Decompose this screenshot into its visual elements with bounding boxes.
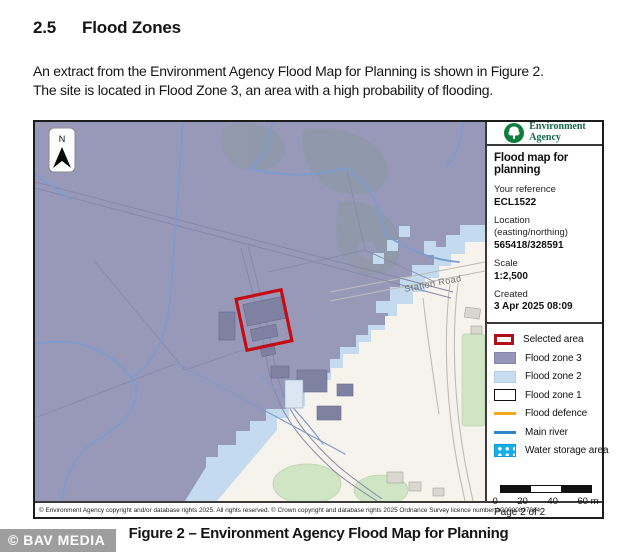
legend-item-selected-area: Selected area — [494, 333, 597, 346]
legend-item-main-river: Main river — [494, 426, 597, 439]
section-heading: 2.5 Flood Zones — [33, 18, 604, 38]
created-field: Created 3 Apr 2025 08:09 — [494, 289, 595, 314]
flood-map-area: Station Road N — [35, 122, 485, 501]
flood-defence-swatch — [494, 412, 516, 415]
section-title: Flood Zones — [82, 18, 181, 38]
intro-paragraph: An extract from the Environment Agency F… — [33, 62, 604, 100]
flood-zone-3-swatch — [494, 352, 516, 364]
selected-area-swatch — [494, 334, 514, 345]
paragraph-line: The site is located in Flood Zone 3, an … — [33, 81, 604, 100]
highlighted-building — [285, 380, 303, 408]
map-info-box: Flood map for planning Your reference EC… — [487, 146, 602, 324]
field-green — [462, 334, 485, 426]
water-storage-swatch — [494, 444, 516, 457]
flood-zone-1-swatch — [494, 389, 516, 401]
north-arrow: N — [49, 128, 75, 172]
location-field: Location (easting/northing) 565418/32859… — [494, 215, 595, 252]
legend-item-flood-defence: Flood defence — [494, 407, 597, 420]
scale-bar: 0 20 40 60 m — [494, 485, 597, 507]
scale-bar-segments — [500, 485, 592, 493]
legend-item-flood-zone-1: Flood zone 1 — [494, 389, 597, 402]
paragraph-line: An extract from the Environment Agency F… — [33, 62, 604, 81]
legend-item-flood-zone-3: Flood zone 3 — [494, 352, 597, 365]
field-green — [273, 464, 341, 501]
north-arrow-label: N — [59, 134, 66, 144]
agency-logo-text: Environment Agency — [529, 122, 586, 144]
main-river-swatch — [494, 431, 516, 434]
figure-2: Station Road N E — [33, 120, 604, 519]
legend-key-box: Selected area Flood zone 3 Flood zone 2 … — [487, 324, 602, 523]
flood-zone-2-swatch — [494, 371, 516, 383]
figure-caption: Figure 2 – Environment Agency Flood Map … — [33, 525, 604, 542]
legend-title: Flood map for planning — [494, 152, 595, 176]
reference-field: Your reference ECL1522 — [494, 184, 595, 209]
legend-item-water-storage: Water storage area — [494, 444, 597, 457]
legend-item-flood-zone-2: Flood zone 2 — [494, 370, 597, 383]
flood-map: Station Road N — [35, 122, 485, 501]
legend-panel: Environment Agency Flood map for plannin… — [485, 122, 602, 501]
agency-logo-box: Environment Agency — [487, 122, 602, 146]
document-page: 2.5 Flood Zones An extract from the Envi… — [0, 0, 634, 542]
section-number: 2.5 — [33, 18, 56, 38]
scale-bar-ticks: 0 20 40 60 m — [493, 496, 599, 507]
environment-agency-logo-icon — [503, 122, 525, 144]
scale-field: Scale 1:2,500 — [494, 258, 595, 283]
bav-media-watermark: © BAV MEDIA — [0, 529, 116, 552]
